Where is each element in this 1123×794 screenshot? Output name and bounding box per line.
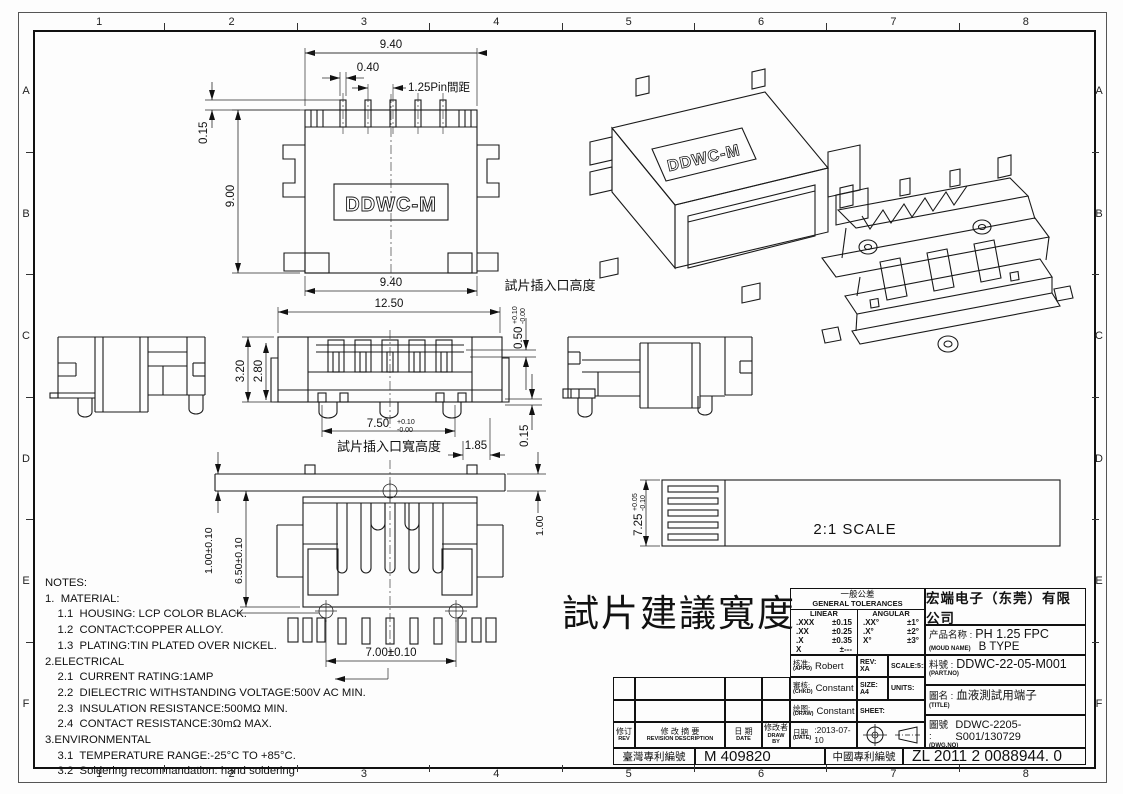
- tolerance-angular-rows: .XX°±1°.X°±2°X°±3°: [858, 619, 924, 646]
- revision-empty-cell: [725, 700, 762, 722]
- taiwan-patent-label: 臺灣專利編號: [613, 748, 695, 765]
- view-top-plan: DDWC-M 9.40 0.40 1.25Pin間距 0.15 9.00: [198, 39, 499, 296]
- china-patent-label: 中國專利編號: [825, 748, 903, 765]
- revision-header-cell: 修改者 DRAW BY: [762, 722, 790, 748]
- company-name: 宏端电子（东莞）有限公司: [925, 588, 1086, 625]
- product-type: B TYPE: [979, 641, 1020, 653]
- date-cell: 日期(DATE) :2013-07-10: [790, 722, 857, 748]
- dim-slot-width: 7.50: [367, 418, 389, 430]
- revision-header-cell: 日 期 DATE: [725, 722, 762, 748]
- note-line: 3.1 TEMPERATURE RANGE:-25°C TO +85°C.: [45, 749, 366, 765]
- product-name-cell: 产品名称 :PH 1.25 FPC (MOUD NAME)B TYPE: [925, 625, 1086, 655]
- drawing-number: DDWC-2205-S001/130729: [955, 719, 1082, 743]
- taiwan-patent-number: M 409820: [695, 748, 825, 765]
- part-number: DDWC-22-05-M001: [956, 657, 1066, 671]
- tolerance-table: 一般公差 GENERAL TOLERANCES LINEAR .XXX±0.15…: [790, 588, 925, 655]
- notes-block: NOTES:1. MATERIAL: 1.1 HOUSING: LCP COLO…: [45, 576, 366, 780]
- note-line: 1.2 CONTACT:COPPER ALLOY.: [45, 623, 366, 639]
- scale-label: 2:1 SCALE: [813, 521, 896, 538]
- tolerance-row: X±---: [791, 646, 857, 655]
- view-test-strip: 7.25 +0.05 -0.10 2:1 SCALE: [632, 480, 1060, 546]
- third-angle-projection-icon: [859, 723, 923, 747]
- dim-pin-length: 1.00±0.10: [203, 527, 215, 574]
- part-number-cell: 料號 :DDWC-22-05-M001 (PART.NO): [925, 655, 1086, 685]
- drawing-sheet: 12345678 12345678 ABCDEF ABCDEF DDWC-M: [0, 0, 1123, 794]
- tolerance-title-en: GENERAL TOLERANCES: [791, 600, 924, 609]
- dim-top-width: 9.40: [380, 39, 402, 51]
- drawn-cell: 绘图:(DRAW) Constant: [790, 700, 857, 722]
- note-line: 1.1 HOUSING: LCP COLOR BLACK.: [45, 607, 366, 623]
- dim-front-inner-height: 2.80: [253, 360, 265, 382]
- dim-opening-tol-minus: -0.00: [520, 308, 527, 324]
- view-isometric-top: DDWC-M: [590, 69, 868, 303]
- view-side-right: [563, 337, 752, 417]
- revision-empty-cell: [762, 677, 790, 700]
- caption-slot-width: 試片插入口寬高度: [337, 439, 441, 454]
- scale-cell: SCALE:5:1: [888, 655, 925, 677]
- logo-text-top-view: DDWC-M: [345, 194, 437, 216]
- view-front: 12.50 3.20 2.80 7.50 +0.10 -0.00 試片插入口寬高…: [235, 278, 596, 460]
- dim-front-height: 3.20: [235, 360, 247, 382]
- revision-empty-cell: [613, 700, 635, 722]
- dim-body-height: 9.00: [225, 185, 237, 207]
- dim-lead-offset: 0.15: [198, 122, 210, 144]
- dim-strip-tol-minus: -0.10: [640, 495, 647, 511]
- dim-pad-span: 7.00±0.10: [365, 647, 416, 659]
- drawing-title-cell: 圖名 :血液測試用端子 (TITLE): [925, 685, 1086, 715]
- revision-empty-cell: [635, 677, 725, 700]
- dim-pin-pitch: 1.25Pin間距: [408, 81, 471, 94]
- note-line: 2.2 DIELECTRIC WITHSTANDING VOLTAGE:500V…: [45, 686, 366, 702]
- dim-opening-height: 0.50: [513, 327, 525, 349]
- note-line: 1. MATERIAL:: [45, 592, 366, 608]
- strip-suggested-width-label: 試片建議寬度: [562, 583, 796, 637]
- dim-pin-width: 0.40: [357, 62, 379, 74]
- logo-text-isometric: DDWC-M: [666, 142, 742, 175]
- revision-empty-cell: [762, 700, 790, 722]
- caption-opening-height: 試片插入口高度: [504, 278, 595, 293]
- size-cell: SIZE: A4: [857, 677, 888, 700]
- sheet-cell: SHEET:: [857, 700, 925, 722]
- dim-edge-gap: 0.15: [519, 425, 531, 447]
- tolerance-row: X°±3°: [858, 637, 924, 646]
- drawing-number-cell: 圖號 :DDWC-2205-S001/130729 (DWG.NO): [925, 715, 1086, 748]
- china-patent-number: ZL 2011 2 0088944. 0: [903, 748, 1086, 765]
- revision-header-cell: 修订 REV: [613, 722, 635, 748]
- approved-cell: 核准:(APPD) Robert: [790, 655, 857, 677]
- approved-by: Robert: [815, 661, 844, 672]
- note-line: 3.ENVIRONMENTAL: [45, 733, 366, 749]
- dim-opening-tol-plus: +0.10: [512, 306, 519, 324]
- dim-tab-width: 1.85: [465, 440, 487, 452]
- note-line: 1.3 PLATING:TIN PLATED OVER NICKEL.: [45, 639, 366, 655]
- date-value: :2013-07-10: [814, 725, 854, 745]
- revision-empty-cell: [613, 677, 635, 700]
- rev-cell: REV: XA: [857, 655, 888, 677]
- revision-empty-cell: [635, 700, 725, 722]
- product-name: PH 1.25 FPC: [975, 627, 1049, 641]
- note-line: NOTES:: [45, 576, 366, 592]
- note-line: 2.ELECTRICAL: [45, 655, 366, 671]
- projection-symbol-cell: [857, 722, 925, 748]
- note-line: 2.3 INSULATION RESISTANCE:500MΩ MIN.: [45, 702, 366, 718]
- drawing-title: 血液測試用端子: [956, 687, 1037, 703]
- view-side-left: [50, 337, 205, 417]
- tolerance-linear-rows: .XXX±0.15.XX±0.25.X±0.35X±---: [791, 619, 857, 655]
- drawn-by: Constant: [816, 706, 854, 717]
- note-line: 3.2 Soldering recommandation: hand solde…: [45, 764, 366, 780]
- dim-bottom-width: 9.40: [380, 277, 402, 289]
- checked-by: Constant: [816, 683, 854, 694]
- note-line: 2.1 CURRENT RATING:1AMP: [45, 670, 366, 686]
- note-line: 2.4 CONTACT RESISTANCE:30mΩ MAX.: [45, 717, 366, 733]
- dim-slot-tol-plus: +0.10: [397, 419, 415, 426]
- dim-strip-thickness: 1.00: [534, 515, 546, 536]
- dim-strip-tol-plus: +0.05: [632, 493, 639, 511]
- dim-front-width: 12.50: [375, 298, 404, 310]
- revision-empty-cell: [725, 677, 762, 700]
- checked-cell: 審核:(CHKD) Constant: [790, 677, 857, 700]
- dim-strip-width: 7.25: [633, 514, 645, 536]
- units-cell: UNITS:: [888, 677, 925, 700]
- revision-header-cell: 修 改 摘 要 REVISION DESCRIPTION: [635, 722, 725, 748]
- dim-slot-tol-minus: -0.00: [397, 427, 413, 434]
